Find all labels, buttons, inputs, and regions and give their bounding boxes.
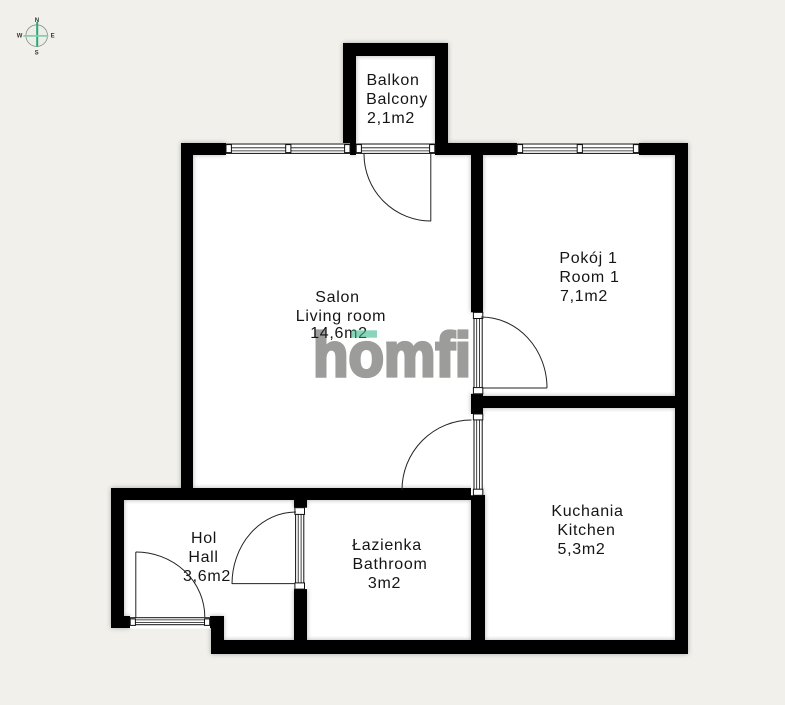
svg-text:Hol: Hol	[191, 530, 217, 547]
svg-text:Pokój 1: Pokój 1	[559, 250, 617, 267]
svg-text:Łazienka: Łazienka	[352, 537, 422, 554]
svg-text:5,3m2: 5,3m2	[558, 541, 606, 558]
svg-text:E: E	[51, 34, 55, 40]
svg-text:Balcony: Balcony	[366, 91, 428, 108]
svg-text:Bathroom: Bathroom	[353, 556, 428, 573]
svg-text:Kuchania: Kuchania	[551, 503, 623, 520]
svg-text:W: W	[17, 34, 23, 40]
svg-text:Balkon: Balkon	[366, 72, 419, 89]
svg-text:N: N	[35, 18, 39, 24]
svg-text:Room 1: Room 1	[559, 269, 619, 286]
svg-text:Salon: Salon	[315, 289, 359, 306]
svg-text:2,1m2: 2,1m2	[367, 110, 415, 127]
svg-text:Kitchen: Kitchen	[557, 522, 615, 539]
svg-text:7,1m2: 7,1m2	[560, 288, 608, 305]
svg-text:S: S	[35, 51, 39, 57]
svg-text:Living room: Living room	[296, 308, 386, 325]
svg-text:Hall: Hall	[188, 549, 218, 566]
svg-text:3m2: 3m2	[368, 575, 401, 592]
